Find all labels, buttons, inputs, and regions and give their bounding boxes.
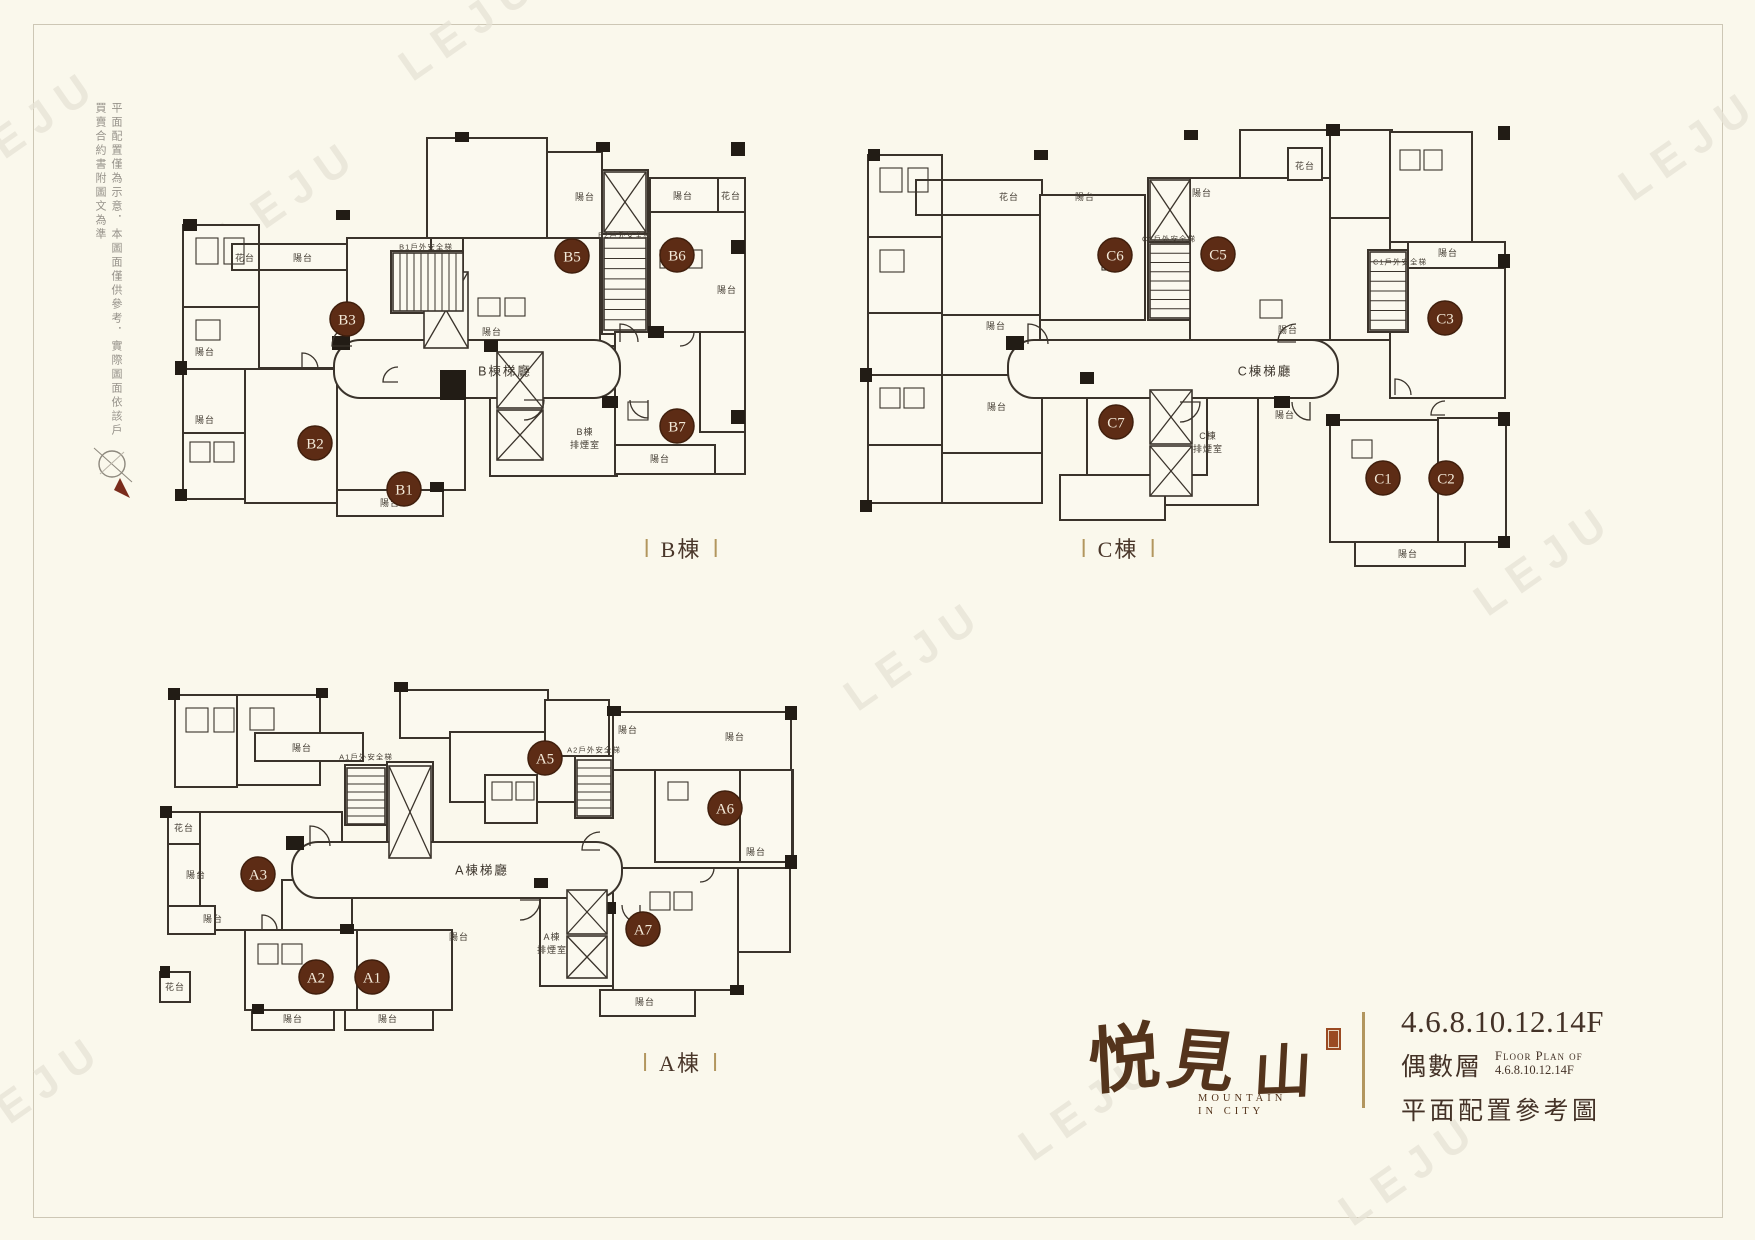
wall-segment: [534, 878, 548, 888]
title-english-line1: Floor Plan of: [1495, 1049, 1583, 1063]
wall-segment: [252, 1004, 264, 1014]
wall-segment: [1326, 124, 1340, 136]
plan-label: 陽台: [1075, 191, 1095, 202]
room: [868, 375, 942, 445]
room: [400, 690, 548, 738]
wall-segment: [648, 326, 664, 338]
plan-label: 陽台: [746, 846, 766, 857]
label-bar: [644, 1053, 646, 1071]
logo-english-name: MOUNTAIN IN CITY: [1198, 1092, 1286, 1118]
unit-label-A2: A2: [307, 971, 325, 987]
plan-label: 陽台: [673, 190, 693, 201]
plan-label: 陽台: [1192, 187, 1212, 198]
room: [942, 453, 1042, 503]
floorplan-A: 陽台花台陽台陽台花台陽台陽台陽台陽台陽台陽台陽台A1戶外安全梯A2戶外安全梯A棟…: [160, 682, 797, 1030]
unit-label-A7: A7: [634, 923, 653, 939]
room: [175, 695, 237, 787]
hall-label-B: B棟梯廳: [478, 363, 532, 378]
title-plan-name: 平面配置參考圖: [1401, 1091, 1604, 1127]
plan-label: 陽台: [292, 742, 312, 753]
wall-segment: [860, 500, 872, 512]
wall-segment: [168, 688, 180, 700]
wall-segment: [160, 966, 170, 978]
label-bar: [646, 539, 648, 557]
wall-segment: [183, 219, 197, 231]
unit-label-B1: B1: [395, 483, 413, 499]
label-bar: [714, 539, 716, 557]
stairs: [604, 238, 646, 330]
wall-segment: [1498, 412, 1510, 426]
unit-label-A3: A3: [249, 868, 267, 884]
wall-segment: [731, 142, 745, 156]
unit-label-C7: C7: [1107, 416, 1125, 432]
logo-char-2: 見: [1162, 1006, 1245, 1106]
room: [183, 307, 259, 369]
plan-label: C棟: [1199, 430, 1217, 441]
wall-segment: [175, 489, 187, 501]
floorplan-C: 花台陽台陽台花台陽台陽台陽台陽台陽台陽台C2戶外安全梯C1戶外安全梯C棟排煙室C…: [860, 124, 1510, 566]
wall-segment: [785, 855, 797, 869]
plan-label: 花台: [174, 822, 194, 833]
plan-label: 花台: [1295, 160, 1315, 171]
plan-label: A1戶外安全梯: [339, 752, 393, 762]
floorplan-poster: { "page": {"bg": "#faf8ec", "border_colo…: [0, 0, 1755, 1240]
plan-label: 陽台: [293, 252, 313, 263]
building-name-C: C棟: [1083, 532, 1154, 564]
unit-label-B7: B7: [668, 420, 686, 436]
title-english-line2: 4.6.8.10.12.14F: [1495, 1063, 1583, 1077]
plan-label: 排煙室: [537, 944, 567, 955]
logo-char-1: 悦: [1086, 996, 1163, 1110]
plan-label: B2戶外安全梯: [598, 230, 652, 240]
wall-segment: [340, 924, 354, 934]
door-arc: [1431, 401, 1445, 415]
plan-label: A2戶外安全梯: [567, 745, 621, 755]
room: [942, 215, 1040, 315]
plan-label: B1戶外安全梯: [399, 242, 453, 252]
plan-label: 花台: [165, 981, 185, 992]
plan-label: 陽台: [986, 320, 1006, 331]
plan-label: 花台: [999, 191, 1019, 202]
floorplan-B: 花台陽台陽台陽台花台陽台陽台陽台陽台陽台陽台B1戶外安全梯B2戶外安全梯B棟排煙…: [175, 132, 745, 516]
wall-segment: [286, 836, 304, 850]
logo-seal-stamp-icon: [1326, 1028, 1341, 1050]
building-name-A: A棟: [644, 1046, 716, 1078]
title-floors: 4.6.8.10.12.14F: [1401, 1004, 1604, 1040]
wall-segment: [860, 368, 872, 382]
plan-label: 陽台: [186, 869, 206, 880]
plan-label: 陽台: [725, 731, 745, 742]
room: [1330, 130, 1392, 218]
wall-segment: [1498, 126, 1510, 140]
wall-segment: [731, 410, 745, 424]
building-name-text: C棟: [1098, 532, 1139, 564]
room: [1390, 132, 1472, 242]
wall-segment: [484, 340, 498, 352]
unit-label-A5: A5: [536, 752, 554, 768]
plan-label: C1戶外安全梯: [1373, 257, 1427, 267]
room: [916, 180, 942, 215]
unit-label-C3: C3: [1436, 312, 1454, 328]
plan-label: C2戶外安全梯: [1142, 234, 1196, 244]
wall-segment: [1326, 414, 1340, 426]
label-bar: [714, 1053, 716, 1071]
plan-label: 陽台: [1275, 409, 1295, 420]
plan-label: 陽台: [1278, 324, 1298, 335]
wall-segment: [175, 361, 187, 375]
room: [942, 180, 1042, 215]
label-bar: [1151, 539, 1153, 557]
plan-label: 陽台: [987, 401, 1007, 412]
logo-calligraphy: 悦 見 山: [1088, 1000, 1312, 1105]
wall-segment: [336, 210, 350, 220]
wall-segment: [785, 706, 797, 720]
title-block: 4.6.8.10.12.14F 偶數層 Floor Plan of 4.6.8.…: [1401, 1004, 1604, 1127]
unit-label-C6: C6: [1106, 249, 1124, 265]
wall-segment: [316, 688, 328, 698]
corridor: [334, 340, 620, 398]
plan-label: 陽台: [717, 284, 737, 295]
plan-label: 陽台: [203, 913, 223, 924]
room: [650, 212, 745, 334]
plan-label: 排煙室: [570, 439, 600, 450]
title-even-layers: 偶數層: [1401, 1047, 1482, 1083]
wall-segment: [1498, 536, 1510, 548]
unit-label-B6: B6: [668, 249, 686, 265]
unit-label-C5: C5: [1209, 248, 1227, 264]
unit-label-A1: A1: [363, 971, 381, 987]
wall-segment: [602, 396, 618, 408]
wall-segment: [1274, 396, 1290, 408]
room: [868, 237, 942, 313]
plan-label: 陽台: [1438, 247, 1458, 258]
hall-label-A: A棟梯廳: [455, 862, 509, 877]
wall-segment: [160, 806, 172, 818]
plan-label: 陽台: [650, 453, 670, 464]
plan-label: 陽台: [283, 1013, 303, 1024]
unit-label-C2: C2: [1437, 472, 1455, 488]
wall-segment: [1498, 254, 1510, 268]
plan-label: 陽台: [449, 931, 469, 942]
wall-segment: [1080, 372, 1094, 384]
room: [427, 138, 547, 238]
unit-label-A6: A6: [716, 802, 735, 818]
building-name-text: B棟: [661, 532, 702, 564]
wall-segment: [730, 985, 744, 995]
door-arc: [520, 900, 540, 920]
plan-label: 陽台: [635, 996, 655, 1007]
room: [738, 868, 790, 952]
room: [613, 712, 791, 770]
plan-label: 陽台: [1398, 548, 1418, 559]
label-bar: [1083, 539, 1085, 557]
wall-segment: [455, 132, 469, 142]
plan-label: 陽台: [482, 326, 502, 337]
wall-segment: [430, 482, 444, 492]
project-logo: 悦 見 山 MOUNTAIN IN CITY: [1088, 1000, 1348, 1120]
wall-segment: [1034, 150, 1048, 160]
plan-label: B棟: [576, 426, 593, 437]
plan-label: A棟: [543, 931, 560, 942]
plan-label: 陽台: [618, 724, 638, 735]
logo-english-line2: IN CITY: [1198, 1105, 1286, 1118]
unit-label-B3: B3: [338, 313, 356, 329]
wall-segment: [868, 149, 880, 161]
title-divider: [1362, 1012, 1365, 1108]
plan-label: 排煙室: [1193, 443, 1223, 454]
plan-label: 陽台: [195, 346, 215, 357]
room: [868, 313, 942, 375]
hall-label-C: C棟梯廳: [1238, 363, 1293, 378]
wall-segment: [440, 370, 466, 400]
unit-label-C1: C1: [1374, 472, 1392, 488]
wall-segment: [394, 682, 408, 692]
plan-label: 陽台: [195, 414, 215, 425]
plan-label: 花台: [235, 252, 255, 263]
plan-label: 花台: [721, 190, 741, 201]
unit-label-B2: B2: [306, 437, 324, 453]
plan-label: 陽台: [378, 1013, 398, 1024]
building-name-text: A棟: [659, 1046, 701, 1078]
logo-english-line1: MOUNTAIN: [1198, 1092, 1286, 1105]
building-name-B: B棟: [646, 532, 717, 564]
plan-label: 陽台: [575, 191, 595, 202]
unit-label-B5: B5: [563, 250, 581, 266]
wall-segment: [1184, 130, 1198, 140]
wall-segment: [731, 240, 745, 254]
wall-segment: [607, 706, 621, 716]
room: [868, 445, 942, 503]
wall-segment: [1006, 336, 1024, 350]
wall-segment: [332, 336, 350, 350]
wall-segment: [596, 142, 610, 152]
title-english: Floor Plan of 4.6.8.10.12.14F: [1495, 1047, 1583, 1077]
